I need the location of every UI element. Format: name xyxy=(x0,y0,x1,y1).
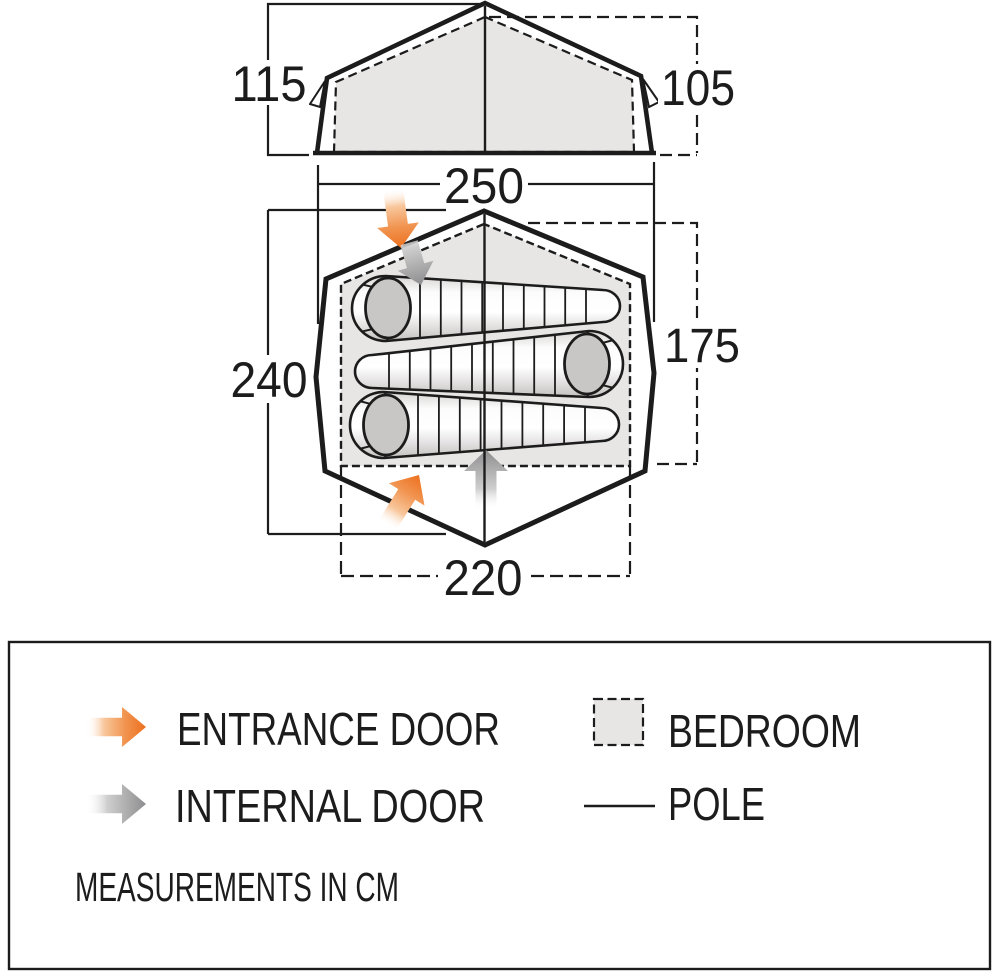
svg-text:POLE: POLE xyxy=(668,778,765,830)
svg-text:240: 240 xyxy=(231,352,308,408)
svg-text:BEDROOM: BEDROOM xyxy=(668,705,861,757)
svg-text:105: 105 xyxy=(661,60,735,116)
svg-text:INTERNAL DOOR: INTERNAL DOOR xyxy=(175,780,485,832)
svg-text:ENTRANCE DOOR: ENTRANCE DOOR xyxy=(177,703,500,755)
svg-text:MEASUREMENTS IN CM: MEASUREMENTS IN CM xyxy=(75,864,399,910)
svg-text:250: 250 xyxy=(444,158,524,214)
svg-text:175: 175 xyxy=(664,320,740,373)
svg-text:115: 115 xyxy=(232,56,307,112)
svg-text:220: 220 xyxy=(444,550,523,606)
